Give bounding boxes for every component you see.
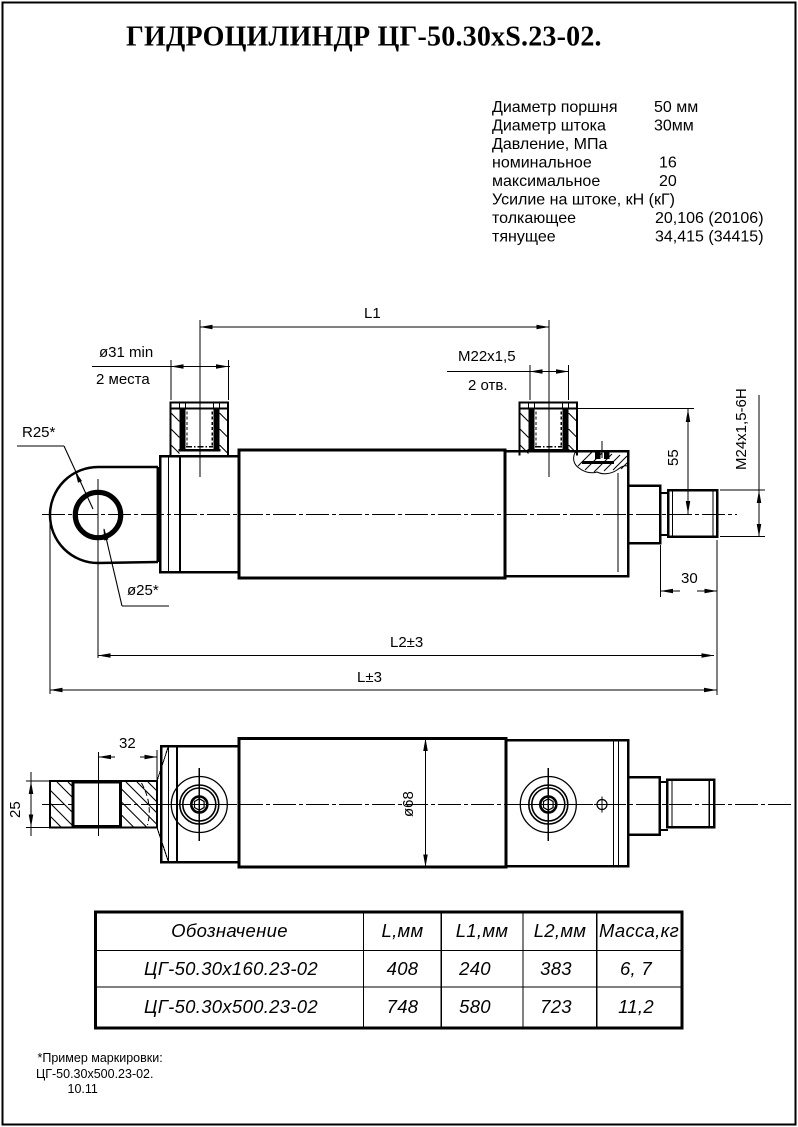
svg-text:25: 25	[7, 801, 24, 818]
svg-text:408: 408	[387, 958, 419, 979]
svg-text:*Пример маркировки:: *Пример маркировки:	[38, 1051, 163, 1065]
svg-text:Давление, МПа: Давление, МПа	[492, 136, 607, 153]
svg-text:Диаметр штока: Диаметр штока	[492, 118, 606, 135]
svg-text:20,106 (20106): 20,106 (20106)	[655, 210, 764, 227]
svg-text:16: 16	[659, 155, 677, 172]
svg-text:ø25*: ø25*	[127, 582, 159, 599]
svg-text:748: 748	[387, 996, 419, 1017]
svg-text:L2,мм: L2,мм	[534, 920, 587, 941]
svg-text:240: 240	[458, 958, 491, 979]
svg-text:383: 383	[540, 958, 572, 979]
svg-text:номинальное: номинальное	[492, 155, 592, 172]
svg-text:ГИДРОЦИЛИНДР ЦГ-50.30xS.23-02.: ГИДРОЦИЛИНДР ЦГ-50.30xS.23-02.	[126, 22, 602, 53]
svg-text:30мм: 30мм	[654, 118, 694, 135]
svg-text:50 мм: 50 мм	[654, 99, 698, 116]
svg-text:20: 20	[659, 173, 677, 190]
svg-text:ЦГ-50.30х500.23-02.: ЦГ-50.30х500.23-02.	[36, 1067, 153, 1081]
svg-text:толкающее: толкающее	[492, 210, 576, 227]
svg-text:10.11: 10.11	[68, 1082, 98, 1096]
svg-text:Диаметр поршня: Диаметр поршня	[492, 99, 618, 116]
svg-text:максимальное: максимальное	[492, 173, 600, 190]
svg-text:R25*: R25*	[22, 424, 56, 441]
svg-text:580: 580	[459, 996, 491, 1017]
svg-text:M22x1,5: M22x1,5	[458, 348, 516, 365]
svg-text:ø31 min: ø31 min	[99, 344, 153, 361]
svg-text:L±3: L±3	[357, 669, 382, 686]
svg-text:Усилие на штоке, кН (кГ): Усилие на штоке, кН (кГ)	[492, 192, 675, 209]
svg-text:ЦГ-50.30х160.23-02: ЦГ-50.30х160.23-02	[144, 958, 318, 979]
svg-text:30: 30	[681, 570, 698, 587]
svg-text:6, 7: 6, 7	[620, 958, 652, 979]
svg-text:Масса,кг: Масса,кг	[599, 920, 679, 941]
svg-text:L1: L1	[364, 305, 381, 322]
svg-text:55: 55	[665, 449, 682, 466]
svg-text:L2±3: L2±3	[390, 634, 423, 651]
svg-text:ЦГ-50.30х500.23-02: ЦГ-50.30х500.23-02	[144, 996, 318, 1017]
svg-text:ø68: ø68	[400, 791, 417, 817]
svg-text:L,мм: L,мм	[382, 920, 424, 941]
svg-text:Обозначение: Обозначение	[171, 920, 288, 941]
svg-text:2 отв.: 2 отв.	[468, 377, 508, 394]
svg-text:тянущее: тянущее	[492, 229, 556, 246]
svg-text:2 места: 2 места	[96, 371, 150, 388]
svg-text:32: 32	[119, 735, 136, 752]
svg-text:M24x1,5-6H: M24x1,5-6H	[733, 388, 750, 470]
svg-text:11,2: 11,2	[618, 996, 654, 1017]
svg-text:34,415 (34415): 34,415 (34415)	[655, 229, 764, 246]
svg-text:L1,мм: L1,мм	[456, 920, 509, 941]
svg-text:723: 723	[540, 996, 572, 1017]
